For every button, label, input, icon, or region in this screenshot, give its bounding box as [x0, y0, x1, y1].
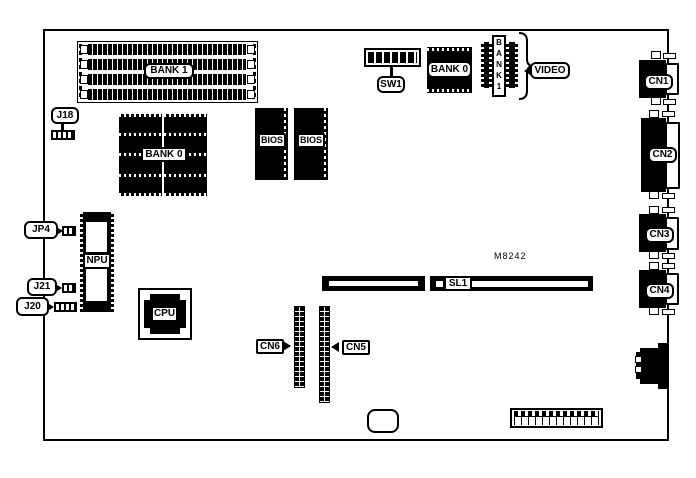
cn3-tab: [649, 206, 659, 214]
cn2-tab: [662, 111, 675, 117]
simm-clip: [247, 60, 255, 69]
cn2-tab: [662, 193, 675, 199]
simm-clip: [247, 90, 255, 99]
cn3-label: CN3: [645, 227, 674, 243]
jp4-label: JP4: [24, 221, 58, 239]
cn5-pin-header: [319, 306, 330, 403]
cn2-tab: [649, 110, 659, 118]
cn1-tab: [663, 99, 676, 105]
slot-stripe: [329, 281, 418, 286]
npu-socket-window: [86, 222, 107, 252]
pin-row: [164, 174, 207, 177]
vram-bank1-chip-left: [481, 42, 492, 88]
cn1-tab: [651, 51, 661, 59]
sw1-switch-segments: [368, 52, 417, 63]
j20-connector: [54, 302, 77, 312]
expansion-slot-left: [322, 276, 425, 291]
pin-row: [427, 48, 472, 51]
cpu-corner: [180, 328, 186, 334]
j18-connector: [51, 130, 75, 140]
bios-label-right: BIOS: [297, 133, 325, 148]
pin-row: [164, 193, 207, 196]
cn4-tab: [662, 309, 675, 315]
m8242-text: M8242: [494, 251, 527, 261]
cn4-tab: [662, 263, 675, 269]
simm-clip: [80, 75, 88, 84]
pin-row: [119, 193, 162, 196]
simm-slot-1: [88, 44, 246, 55]
pin-row: [164, 114, 207, 117]
din-pin-hole: [635, 366, 642, 373]
cn1-label: CN1: [644, 74, 673, 90]
pin-row: [164, 133, 207, 136]
sl1-label: SL1: [444, 276, 472, 291]
jp4-jumper: [62, 226, 76, 236]
vram-bank0-label: BANK 0: [427, 61, 472, 78]
vram-bank1-label: B A N K 1: [492, 35, 506, 97]
j21-jumper: [62, 283, 76, 293]
cn3-tab: [662, 253, 675, 259]
simm-clip: [80, 90, 88, 99]
pin-row: [427, 89, 472, 92]
simm-clip: [247, 45, 255, 54]
j21-label: J21: [27, 278, 57, 296]
cn6-pointer: [283, 341, 291, 351]
power-connector: [510, 408, 603, 428]
j18-label: J18: [51, 107, 79, 124]
cn1-tab: [663, 53, 676, 59]
cpu-corner: [180, 294, 186, 300]
cn5-pointer: [331, 342, 339, 352]
simm-clip: [80, 60, 88, 69]
power-connector-cells: [514, 416, 599, 425]
video-label: VIDEO: [530, 62, 570, 79]
cn4-tab: [649, 307, 659, 315]
cn6-pin-header: [294, 306, 305, 388]
cn3-tab: [662, 207, 675, 213]
j18-pointer: [61, 123, 64, 131]
pin-row: [119, 114, 162, 117]
simm-clip: [247, 75, 255, 84]
cn6-label: CN6: [256, 339, 284, 354]
cpu-corner: [144, 294, 150, 300]
simm-clip: [80, 45, 88, 54]
cn2-tab: [649, 191, 659, 199]
npu-label: NPU: [83, 253, 111, 269]
din-pin-hole: [635, 356, 642, 363]
cn4-tab: [649, 262, 659, 270]
bank1-label: BANK 1: [144, 63, 194, 79]
cpu-label: CPU: [151, 306, 178, 322]
bios-label-left: BIOS: [258, 133, 286, 148]
sw1-dip-switch: [364, 48, 421, 67]
sw1-label: SW1: [377, 76, 405, 93]
cpu-corner: [144, 328, 150, 334]
cn1-tab: [651, 97, 661, 105]
cn3-tab: [649, 251, 659, 259]
pin-row: [119, 174, 162, 177]
din-connector-rim: [658, 343, 667, 389]
dram-bank0-label: BANK 0: [141, 147, 187, 162]
simm-slot-4: [88, 89, 246, 100]
crystal-outline: [367, 409, 399, 433]
j20-label: J20: [16, 297, 49, 316]
slot-notch: [436, 281, 443, 287]
pin-row: [119, 133, 162, 136]
cn5-label: CN5: [342, 340, 370, 355]
cn4-label: CN4: [645, 283, 674, 299]
motherboard-diagram: BANK 1 J18 BANK 0 BIOS BIOS SW1 BANK 0: [0, 0, 696, 478]
cn2-label: CN2: [648, 147, 677, 163]
